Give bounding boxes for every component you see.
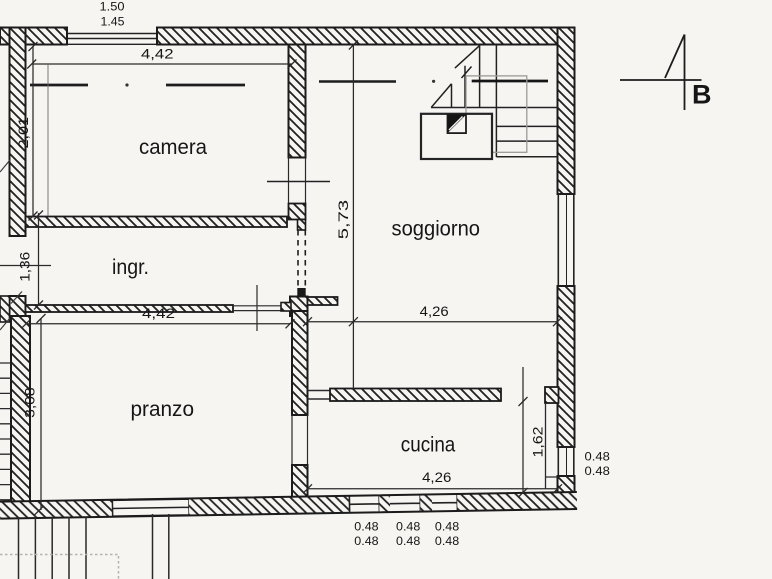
svg-text:4,42: 4,42 [141, 46, 174, 62]
svg-text:1,36: 1,36 [17, 252, 33, 282]
svg-text:0.48: 0.48 [354, 520, 379, 534]
svg-text:4,26: 4,26 [422, 469, 451, 485]
svg-text:0.48: 0.48 [435, 520, 460, 534]
svg-text:0.48: 0.48 [354, 534, 379, 548]
svg-text:4,42: 4,42 [142, 305, 175, 321]
svg-text:soggiorno: soggiorno [392, 218, 481, 241]
svg-text:B: B [692, 80, 712, 110]
svg-text:0.48: 0.48 [585, 450, 611, 464]
svg-text:0.48: 0.48 [435, 534, 460, 548]
svg-text:0.48: 0.48 [396, 520, 421, 534]
svg-text:ingr.: ingr. [112, 256, 149, 279]
svg-text:1.50: 1.50 [100, 0, 125, 14]
svg-text:0.48: 0.48 [396, 534, 421, 548]
svg-text:cucina: cucina [401, 434, 456, 457]
svg-text:1.45: 1.45 [101, 15, 125, 29]
svg-text:pranzo: pranzo [131, 398, 195, 421]
svg-text:1,62: 1,62 [530, 426, 546, 457]
svg-text:4,26: 4,26 [420, 303, 449, 319]
svg-text:2,01: 2,01 [15, 117, 31, 149]
svg-text:5,73: 5,73 [335, 200, 351, 240]
svg-text:camera: camera [139, 136, 207, 159]
svg-text:3,08: 3,08 [21, 387, 37, 418]
svg-text:0.48: 0.48 [585, 464, 611, 478]
